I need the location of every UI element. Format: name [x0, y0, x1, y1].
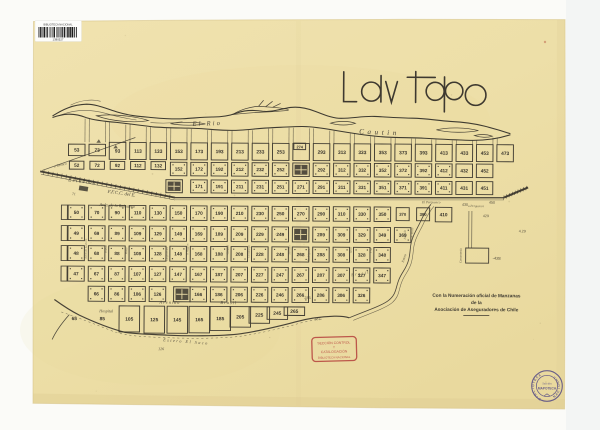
- svg-text:267: 267: [297, 273, 305, 278]
- svg-text:205: 205: [236, 315, 244, 321]
- svg-text:212: 212: [236, 167, 244, 172]
- svg-text:171: 171: [195, 184, 203, 189]
- svg-text:71: 71: [72, 192, 76, 196]
- svg-text:188: 188: [215, 252, 223, 257]
- svg-text:211: 211: [236, 184, 244, 189]
- svg-text:247: 247: [276, 273, 284, 278]
- svg-text:246: 246: [276, 293, 284, 298]
- svg-text:286: 286: [317, 293, 325, 298]
- svg-text:266: 266: [296, 293, 304, 298]
- svg-text:109: 109: [134, 231, 142, 236]
- svg-text:310: 310: [338, 212, 346, 217]
- svg-text:231: 231: [256, 184, 264, 189]
- svg-text:312: 312: [338, 168, 346, 173]
- svg-text:173: 173: [195, 149, 203, 155]
- svg-text:48: 48: [74, 251, 80, 256]
- svg-text:147: 147: [174, 272, 182, 277]
- svg-text:108: 108: [133, 251, 141, 256]
- svg-text:285: 285: [304, 296, 310, 300]
- svg-text:50: 50: [74, 210, 80, 215]
- svg-text:411: 411: [440, 186, 448, 191]
- svg-text:265: 265: [290, 309, 298, 315]
- svg-text:Avenida Lautaro: Avenida Lautaro: [84, 238, 88, 259]
- svg-text:Rodriguez: Rodriguez: [307, 248, 311, 262]
- svg-text:El Perquenco: El Perquenco: [421, 200, 441, 204]
- svg-text:145: 145: [173, 317, 181, 323]
- svg-text:331: 331: [358, 185, 366, 190]
- svg-text:351: 351: [379, 185, 387, 190]
- svg-text:372: 372: [399, 168, 407, 173]
- svg-text:207: 207: [235, 272, 243, 277]
- svg-text:Con la Numeración oficial de M: Con la Numeración oficial de Manzanas: [432, 293, 520, 299]
- svg-text:Brasil: Brasil: [220, 300, 237, 305]
- svg-text:251: 251: [277, 185, 285, 190]
- svg-text:107: 107: [133, 272, 141, 277]
- svg-text:MAPOTECA: MAPOTECA: [538, 387, 557, 391]
- svg-text:291: 291: [317, 185, 325, 190]
- svg-text:153: 153: [175, 149, 183, 155]
- svg-text:69: 69: [94, 231, 100, 236]
- svg-text:CATALOGACIÓN: CATALOGACIÓN: [321, 348, 348, 354]
- svg-text:A. Pinto: A. Pinto: [410, 227, 414, 238]
- svg-text:350: 350: [378, 212, 386, 217]
- svg-text:348: 348: [378, 253, 386, 258]
- svg-text:168: 168: [195, 252, 203, 257]
- svg-text:169: 169: [195, 232, 203, 237]
- svg-text:93: 93: [115, 149, 121, 155]
- svg-text:410: 410: [440, 212, 448, 217]
- svg-text:270: 270: [297, 211, 305, 216]
- svg-text:O Higgins: O Higgins: [186, 244, 189, 256]
- svg-text:288: 288: [317, 252, 325, 257]
- svg-text:Condell: Condell: [226, 245, 230, 255]
- svg-text:330: 330: [358, 212, 366, 217]
- svg-text:311: 311: [338, 185, 346, 190]
- svg-text:Cementerio: Cementerio: [459, 248, 463, 263]
- svg-text:208: 208: [235, 252, 243, 257]
- svg-text:Talca: Talca: [350, 247, 353, 254]
- svg-text:Prat: Prat: [369, 248, 373, 255]
- svg-text:Matta: Matta: [125, 247, 128, 255]
- svg-text:112: 112: [134, 163, 142, 168]
- svg-text:166: 166: [194, 292, 202, 297]
- svg-text:306: 306: [337, 293, 345, 298]
- svg-text:245: 245: [273, 311, 281, 317]
- svg-text:228: 228: [256, 252, 264, 257]
- svg-text:274: 274: [296, 144, 303, 149]
- svg-text:287: 287: [314, 317, 320, 321]
- svg-text:Hospital: Hospital: [98, 308, 114, 313]
- svg-text:430: 430: [462, 203, 468, 207]
- svg-text:4.29: 4.29: [519, 229, 526, 233]
- svg-text:88: 88: [114, 251, 120, 256]
- svg-text:Covadonga: Covadonga: [248, 245, 251, 259]
- svg-text:185: 185: [216, 316, 224, 322]
- svg-text:67: 67: [94, 271, 100, 276]
- svg-text:90: 90: [115, 210, 121, 215]
- svg-text:206: 206: [235, 292, 243, 297]
- svg-text:El Rio: El Rio: [191, 120, 222, 128]
- svg-text:192: 192: [216, 167, 224, 172]
- svg-text:271: 271: [297, 185, 305, 190]
- svg-text:53: 53: [74, 148, 80, 154]
- svg-text:113: 113: [134, 149, 142, 155]
- svg-text:248: 248: [276, 252, 284, 257]
- svg-text:313: 313: [338, 150, 346, 156]
- svg-text:de la: de la: [471, 300, 482, 305]
- svg-text:370: 370: [399, 212, 407, 217]
- svg-text:193: 193: [216, 149, 224, 155]
- svg-text:413: 413: [440, 151, 448, 157]
- svg-text:132: 132: [154, 163, 162, 168]
- svg-text:287: 287: [317, 273, 325, 278]
- svg-text:349: 349: [378, 233, 386, 238]
- svg-text:391: 391: [419, 185, 427, 190]
- svg-text:333: 333: [358, 150, 366, 156]
- svg-text:453: 453: [481, 151, 489, 157]
- svg-text:328: 328: [358, 253, 366, 258]
- svg-text:85: 85: [100, 316, 106, 322]
- svg-text:290: 290: [317, 212, 325, 217]
- svg-text:292: 292: [318, 168, 326, 173]
- svg-text:Caupolican: Caupolican: [165, 247, 169, 262]
- svg-text:133: 133: [154, 149, 162, 155]
- svg-text:190: 190: [215, 211, 223, 216]
- svg-text:89: 89: [114, 231, 120, 236]
- svg-text:268: 268: [297, 252, 305, 257]
- svg-text:Serrano: Serrano: [288, 245, 291, 255]
- svg-text:213: 213: [236, 149, 244, 155]
- svg-text:191: 191: [215, 184, 223, 189]
- svg-text:451: 451: [481, 186, 489, 191]
- svg-text:92: 92: [115, 163, 121, 168]
- svg-text:326: 326: [358, 293, 366, 298]
- svg-text:226: 226: [256, 292, 264, 297]
- svg-text:429: 429: [483, 214, 489, 218]
- svg-text:105: 105: [125, 317, 133, 323]
- svg-text:52: 52: [74, 163, 80, 168]
- svg-text:Bilbao: Bilbao: [104, 244, 108, 253]
- svg-text:126: 126: [158, 346, 164, 351]
- svg-text:Asociación de Aseguradores de: Asociación de Aseguradores de Chile: [434, 307, 518, 313]
- svg-text:149: 149: [174, 231, 182, 236]
- svg-text:189: 189: [215, 232, 223, 237]
- svg-text:293: 293: [318, 150, 326, 156]
- svg-text:473: 473: [501, 151, 509, 157]
- svg-text:393: 393: [420, 150, 428, 156]
- svg-text:Sección: Sección: [542, 382, 552, 386]
- svg-text:233: 233: [256, 149, 264, 155]
- svg-text:Avenida: Avenida: [403, 229, 407, 240]
- svg-text:209: 209: [236, 232, 244, 237]
- svg-text:371: 371: [399, 185, 407, 190]
- svg-text:210: 210: [236, 211, 244, 216]
- svg-text:308: 308: [337, 252, 345, 257]
- svg-text:309: 309: [338, 232, 346, 237]
- svg-text:347: 347: [378, 273, 386, 278]
- svg-text:373: 373: [399, 150, 407, 156]
- svg-text:BIBLIOTECA NACIONAL: BIBLIOTECA NACIONAL: [43, 23, 73, 27]
- svg-text:72: 72: [94, 163, 100, 168]
- svg-text:225: 225: [255, 313, 263, 319]
- svg-text:a Perquenco: a Perquenco: [468, 204, 485, 208]
- svg-text:227: 227: [256, 272, 264, 277]
- svg-text:172: 172: [195, 167, 203, 172]
- svg-text:126: 126: [154, 292, 162, 297]
- svg-text:47: 47: [73, 271, 79, 276]
- svg-text:452: 452: [481, 169, 489, 174]
- svg-text:253: 253: [277, 150, 285, 156]
- svg-text:49: 49: [74, 231, 80, 236]
- svg-text:252: 252: [277, 167, 285, 172]
- svg-text:68: 68: [94, 251, 100, 256]
- svg-text:412: 412: [440, 168, 448, 173]
- svg-text:432: 432: [460, 168, 468, 173]
- svg-text:Y: Y: [333, 345, 335, 349]
- svg-text:332: 332: [358, 168, 366, 173]
- svg-text:170: 170: [195, 211, 203, 216]
- svg-text:110: 110: [134, 210, 142, 215]
- svg-text:329: 329: [358, 233, 366, 238]
- svg-text:86: 86: [114, 292, 120, 297]
- svg-text:230: 230: [256, 211, 264, 216]
- svg-text:431: 431: [460, 186, 468, 191]
- svg-text:Cautin: Cautin: [359, 128, 400, 138]
- svg-text:127: 127: [154, 272, 162, 277]
- svg-text:152: 152: [175, 167, 183, 172]
- svg-text:148: 148: [174, 251, 182, 256]
- svg-text:Avenida: Avenida: [158, 300, 180, 305]
- svg-text:307: 307: [337, 273, 345, 278]
- svg-text:289: 289: [317, 232, 325, 237]
- svg-text:232: 232: [256, 167, 264, 172]
- svg-text:392: 392: [420, 168, 428, 173]
- svg-text:187: 187: [215, 272, 223, 277]
- svg-text:70: 70: [94, 210, 100, 215]
- svg-text:130: 130: [154, 211, 162, 216]
- svg-text:186: 186: [215, 292, 223, 297]
- svg-text:249: 249: [276, 232, 284, 237]
- svg-text:352: 352: [379, 168, 387, 173]
- svg-text:-428: -428: [493, 256, 502, 261]
- svg-text:128: 128: [154, 251, 162, 256]
- svg-text:87: 87: [114, 272, 120, 277]
- svg-text:167: 167: [195, 272, 203, 277]
- svg-text:106: 106: [133, 292, 141, 297]
- svg-text:BIBLIOTECA NACIONAL: BIBLIOTECA NACIONAL: [318, 355, 351, 360]
- svg-text:129: 129: [154, 231, 162, 236]
- svg-text:353: 353: [379, 150, 387, 156]
- svg-text:66: 66: [94, 291, 100, 296]
- svg-text:150: 150: [174, 211, 182, 216]
- svg-text:250: 250: [276, 211, 284, 216]
- svg-text:229: 229: [256, 232, 264, 237]
- svg-text:125: 125: [150, 317, 158, 323]
- svg-text:433: 433: [460, 151, 468, 157]
- svg-text:1380527: 1380527: [53, 38, 64, 42]
- svg-text:450: 450: [489, 201, 495, 205]
- svg-text:165: 165: [195, 317, 203, 323]
